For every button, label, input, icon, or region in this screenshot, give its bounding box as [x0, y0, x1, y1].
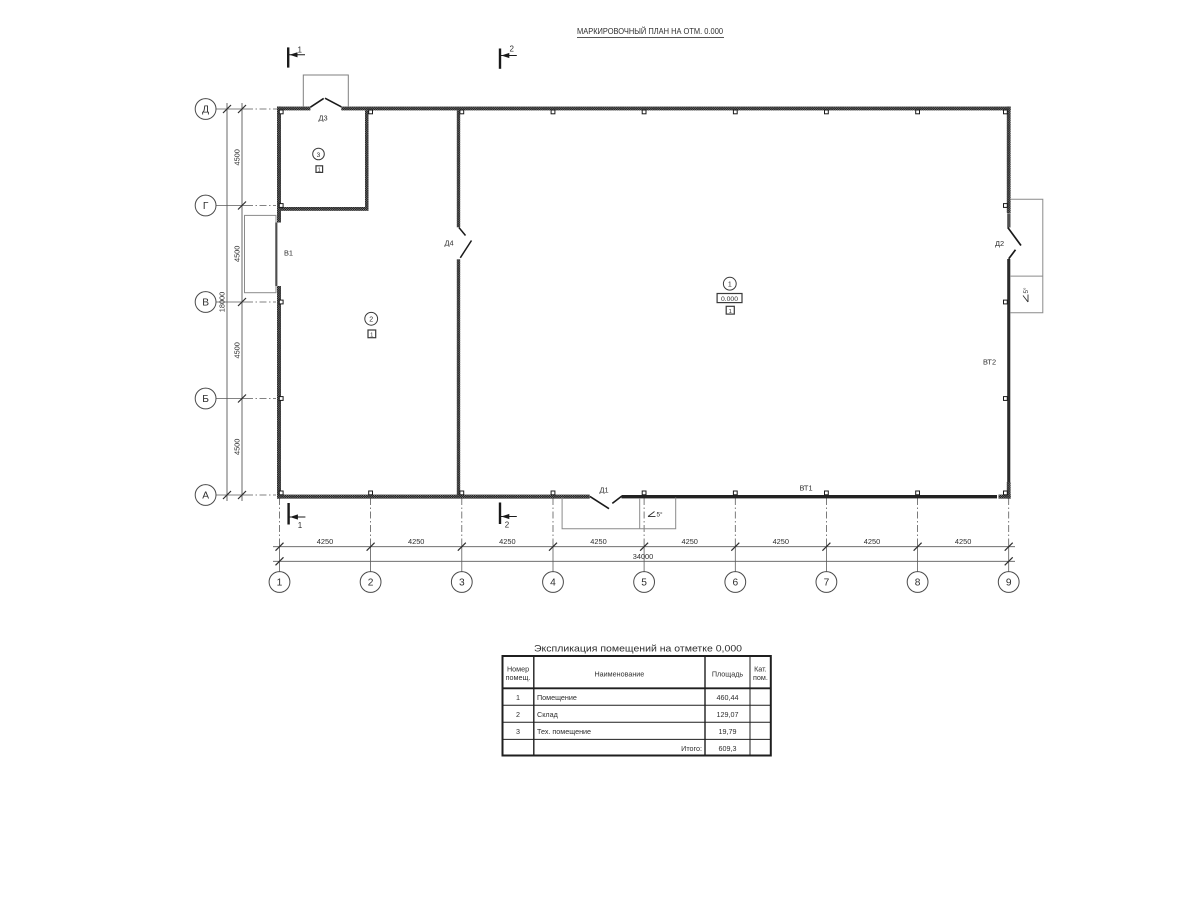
svg-text:4500: 4500: [233, 342, 242, 358]
svg-text:5: 5: [641, 578, 647, 589]
svg-text:В: В: [202, 298, 209, 309]
svg-text:5°: 5°: [1022, 287, 1030, 294]
svg-text:4250: 4250: [408, 537, 424, 546]
svg-text:В1: В1: [284, 249, 293, 258]
svg-text:4250: 4250: [864, 537, 880, 546]
svg-text:ВТ1: ВТ1: [800, 484, 813, 493]
svg-text:1: 1: [728, 282, 732, 289]
svg-text:0.000: 0.000: [721, 296, 738, 303]
svg-text:34000: 34000: [633, 552, 654, 561]
svg-text:Итого:: Итого:: [681, 744, 702, 753]
svg-text:4: 4: [550, 578, 556, 589]
svg-text:2: 2: [510, 45, 515, 54]
svg-text:помещ.: помещ.: [506, 673, 531, 682]
svg-text:4250: 4250: [955, 537, 971, 546]
svg-text:Склад: Склад: [537, 710, 559, 719]
svg-text:Д2: Д2: [995, 239, 1004, 248]
svg-text:4500: 4500: [233, 246, 242, 262]
svg-text:3: 3: [459, 578, 465, 589]
svg-text:Д1: Д1: [600, 486, 609, 495]
svg-text:Д: Д: [202, 105, 209, 116]
svg-text:8: 8: [915, 578, 921, 589]
svg-text:2: 2: [369, 317, 373, 324]
svg-text:Д4: Д4: [445, 239, 454, 248]
svg-text:1: 1: [298, 46, 303, 55]
svg-text:Помещение: Помещение: [537, 693, 577, 702]
svg-text:4250: 4250: [317, 537, 333, 546]
svg-text:2: 2: [368, 578, 374, 589]
svg-text:1: 1: [516, 693, 520, 702]
svg-text:9: 9: [1006, 578, 1012, 589]
svg-text:1: 1: [318, 168, 321, 174]
svg-text:18000: 18000: [218, 292, 227, 313]
svg-text:А: А: [202, 491, 209, 502]
svg-text:1: 1: [277, 578, 283, 589]
svg-text:4500: 4500: [233, 439, 242, 455]
svg-text:7: 7: [824, 578, 830, 589]
svg-text:5°: 5°: [657, 511, 664, 519]
svg-text:ВТ2: ВТ2: [983, 358, 996, 367]
svg-text:4250: 4250: [773, 537, 789, 546]
svg-text:Г: Г: [203, 201, 209, 212]
svg-text:Б: Б: [202, 394, 209, 405]
svg-text:1: 1: [370, 333, 373, 339]
svg-text:19,79: 19,79: [719, 727, 737, 736]
svg-text:Наименование: Наименование: [594, 670, 644, 679]
svg-text:2: 2: [505, 521, 510, 530]
svg-text:Д3: Д3: [319, 114, 328, 123]
svg-text:МАРКИРОВОЧНЫЙ ПЛАН НА ОТМ. 0.0: МАРКИРОВОЧНЫЙ ПЛАН НА ОТМ. 0.000: [577, 25, 723, 36]
svg-text:Тех. помещение: Тех. помещение: [537, 727, 591, 736]
svg-text:2: 2: [516, 710, 520, 719]
svg-text:4500: 4500: [233, 149, 242, 165]
svg-text:129,07: 129,07: [717, 710, 739, 719]
svg-text:4250: 4250: [499, 537, 515, 546]
svg-text:4250: 4250: [681, 537, 697, 546]
svg-text:пом.: пом.: [753, 673, 768, 682]
svg-text:1: 1: [298, 521, 303, 530]
svg-text:Экспликация помещений на отмет: Экспликация помещений на отметке 0,000: [534, 644, 742, 654]
svg-text:4250: 4250: [590, 537, 606, 546]
svg-text:3: 3: [317, 152, 321, 159]
svg-text:3: 3: [516, 727, 520, 736]
svg-text:Площадь: Площадь: [712, 670, 744, 679]
svg-text:6: 6: [732, 578, 738, 589]
svg-text:460,44: 460,44: [717, 693, 739, 702]
svg-text:609,3: 609,3: [719, 744, 737, 753]
svg-text:1: 1: [729, 309, 732, 315]
